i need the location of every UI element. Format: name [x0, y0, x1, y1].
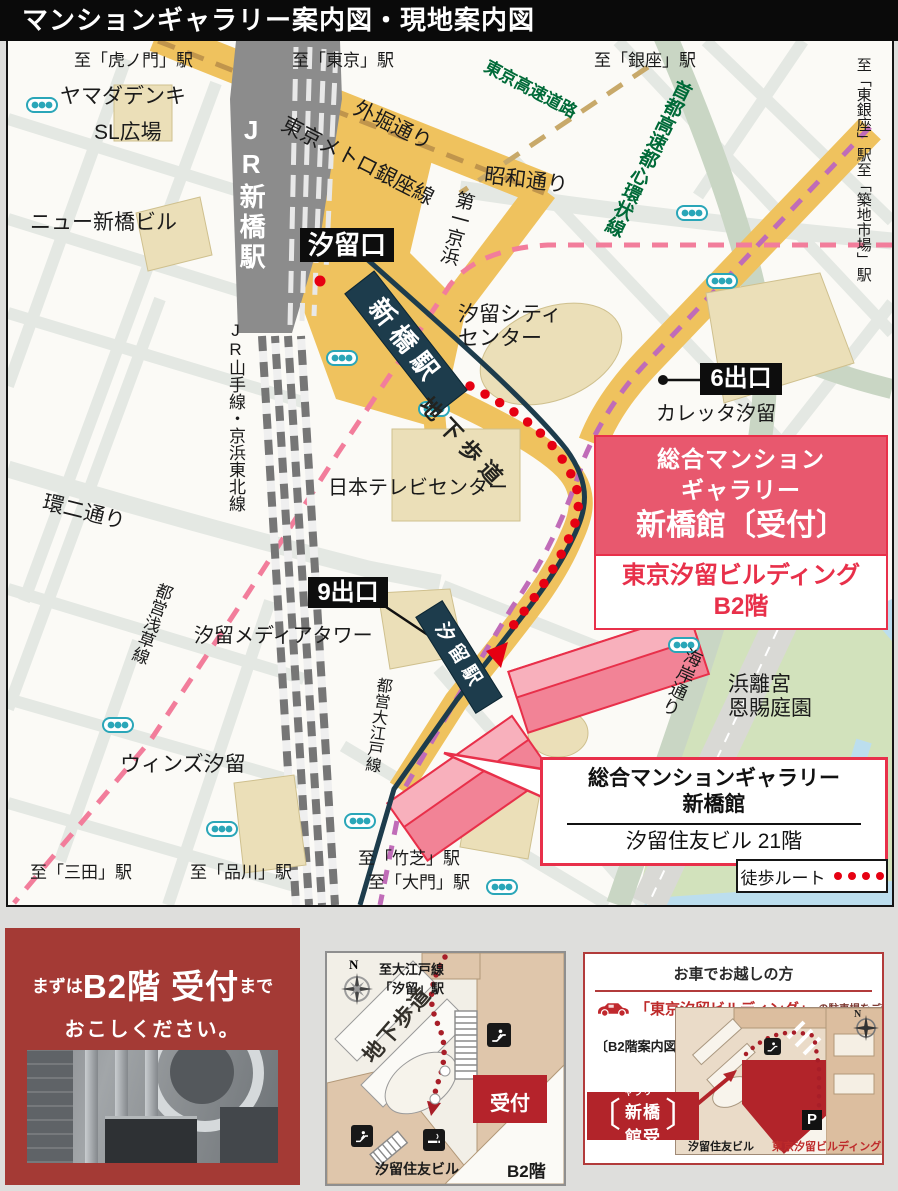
label-to-shinagawa: 至「品川」駅: [190, 863, 292, 882]
car-reception-callout: 〔 総合マンションギャラリー 新橋館受付 〕: [587, 1092, 699, 1140]
label-yamada-denki: ヤマダデンキ: [60, 85, 186, 109]
label-exit9: 9出口: [308, 577, 388, 608]
escalator-icon: [487, 1023, 511, 1047]
label-to-mita: 至「三田」駅: [30, 863, 132, 882]
car-map-sumitomo-label: 汐留住友ビル: [688, 1138, 754, 1154]
label-to-tokyo: 至「東京」駅: [292, 51, 394, 70]
gallery-entrance-photo: [27, 1050, 278, 1163]
walk-route-legend: 徒歩ルート: [736, 859, 888, 893]
label-nittele: 日本テレビセンター: [328, 477, 508, 499]
visit-instruction-line2: おこしください。: [5, 1013, 300, 1042]
label-hamarikyu: 浜離宮 恩賜庭園: [728, 673, 812, 720]
reception-callout-floor: B2階: [596, 591, 886, 622]
area-map: 至「虎ノ門」駅 ヤマダデンキ SL広場 ニュー新橋ビル 至「東京」駅 外堀通り …: [6, 41, 894, 907]
b2-sumitomo-label: 汐留住友ビル: [375, 1159, 459, 1179]
car-access-panel: お車でお越しの方 「東京汐留ビルディング」の駐車場をご利用ください。 〔B2階案…: [583, 952, 884, 1165]
reception-callout-line1: 総合マンション: [596, 444, 886, 475]
reception-callout-building: 東京汐留ビルディング: [596, 560, 886, 591]
label-winz: ウィンズ汐留: [120, 753, 246, 777]
visit-instruction-panel: まずはB2階 受付まで おこしください。: [5, 928, 300, 1185]
label-new-shimbashi-bldg: ニュー新橋ビル: [30, 211, 177, 235]
guide-map-sheet: マンションギャラリー案内図・現地案内図: [0, 0, 898, 1191]
escalator-icon: [351, 1125, 373, 1147]
car-icon: [595, 999, 631, 1018]
b2-floor-label: B2階: [507, 1157, 546, 1182]
parking-icon: P: [802, 1110, 822, 1130]
b2-reception-label: 受付: [477, 1087, 543, 1116]
label-shiodome-exit: 汐留口: [300, 228, 394, 262]
label-jr-shimbashi-station: JR新橋駅: [236, 115, 265, 273]
label-to-ginza: 至「銀座」駅: [594, 51, 696, 70]
b2-map-graphics: [327, 953, 564, 1184]
walk-route-label: 徒歩ルート: [741, 864, 826, 889]
walk-route-dots-icon: [834, 872, 884, 880]
label-to-toranomon: 至「虎ノ門」駅: [74, 51, 193, 70]
car-panel-header: お車でお越しの方: [585, 963, 882, 984]
label-to-daimon: 至「大門」駅: [368, 873, 470, 892]
label-jr-yamanote-line: JR山手線・京浜東北線: [226, 321, 245, 512]
sumitomo-callout-line2: 新橋館: [543, 792, 885, 818]
escalator-icon: [764, 1038, 781, 1055]
reception-callout: 総合マンション ギャラリー 新橋館〔受付〕 東京汐留ビルディング B2階: [594, 435, 888, 630]
label-exit6: 6出口: [700, 363, 782, 395]
reception-callout-line2: ギャラリー: [596, 475, 886, 506]
smoking-area-icon: [423, 1129, 445, 1151]
car-access-minimap: P N 汐留住友ビル 東京汐留ビルディング: [675, 1007, 884, 1155]
car-compass-north-label: N: [854, 1009, 861, 1020]
label-media-tower: 汐留メディアタワー: [194, 625, 373, 647]
label-shiodome-city-center: 汐留シティ センター: [458, 303, 562, 350]
label-sl-plaza: SL広場: [94, 121, 162, 145]
b2-floor-map-panel: N 至大江戸線 「汐留」駅 地下歩道 受付 汐留住友ビル B2階: [325, 951, 566, 1186]
label-caretta: カレッタ汐留: [656, 403, 776, 425]
sumitomo-callout-line1: 総合マンションギャラリー: [543, 766, 885, 792]
sumitomo-callout-line3: 汐留住友ビル 21階: [543, 829, 885, 855]
car-map-shiodome-bldg-label: 東京汐留ビルディング: [772, 1138, 881, 1154]
page-title: マンションギャラリー案内図・現地案内図: [0, 0, 898, 41]
reception-callout-line3: 新橋館〔受付〕: [596, 506, 886, 546]
label-to-higashi-ginza: 至「東銀座」駅至「築地市場」駅: [854, 57, 871, 317]
b2-compass-north-label: N: [349, 957, 358, 973]
visit-instruction-line1: まずはB2階 受付まで: [5, 960, 300, 1008]
sumitomo-callout: 総合マンションギャラリー 新橋館 汐留住友ビル 21階: [540, 757, 888, 866]
label-to-takeshiba: 至「竹芝」駅: [358, 849, 460, 868]
